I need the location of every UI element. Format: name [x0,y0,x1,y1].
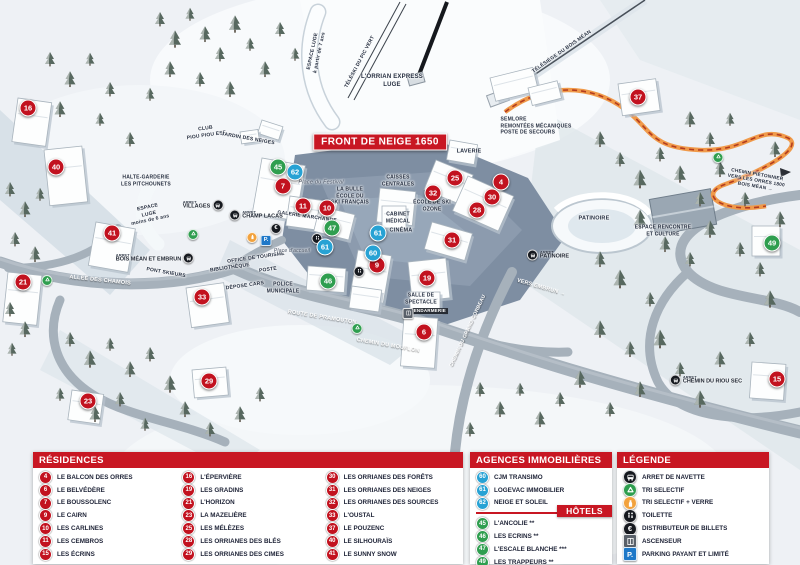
map-marker-46[interactable]: 46 [320,273,337,290]
marker-badge: 7 [39,497,52,510]
recycle-icon [352,323,363,334]
bus-stop-bois-m-an-et-embrun: ARRETBOIS MÉAN ET EMBRUN [116,253,194,264]
legend-item-19: 19LES GRADINS [176,484,319,497]
map-marker-30[interactable]: 30 [484,189,501,206]
legende-item: TRI SELECTIF + VERRE [617,497,769,510]
legend-item-7: 7LE BOUSSOLENC [33,497,176,510]
legend-item-4: 4LE BALCON DES ORRES [33,471,176,484]
marker-badge: 25 [182,522,195,535]
map-marker-32[interactable]: 32 [425,185,442,202]
map-marker-16[interactable]: 16 [20,100,37,117]
legend-item-6: 6LE BELVÉDÈRE [33,484,176,497]
facility-recycle-icon [713,147,724,165]
map-marker-62[interactable]: 62 [287,164,304,181]
legend-item-15: 15LES ÉCRINS [33,548,176,561]
facility-elevator-icon [403,303,414,321]
map-marker-6[interactable]: 6 [416,324,433,341]
bus-stop-label: ARRETVILLAGES [183,200,211,210]
map-marker-4[interactable]: 4 [493,174,510,191]
legend-item-label: LOGEVAC IMMOBILIER [494,487,564,494]
legende-item-label: TRI SELECTIF + VERRE [642,499,713,506]
legend-item-31: 31LES ORRIANES DES NEIGES [320,484,463,497]
legend-item-46: 46LES ECRINS ** [470,530,612,543]
map-marker-61[interactable]: 61 [370,225,387,242]
legend-item-label: L'ANCOLIE ** [494,520,534,527]
bus-icon [670,375,681,386]
map-marker-37[interactable]: 37 [630,89,647,106]
legend-item-30: 30LES ORRIANES DES FORÊTS [320,471,463,484]
legende-item: ASCENSEUR [617,535,769,548]
bus-stop-label: ARRETPATINOIRE [540,250,569,260]
legend-item-label: L'OUSTAL [344,512,375,519]
recycle-icon [713,152,724,163]
legende-item: TOILETTE [617,509,769,522]
legende-item-label: TOILETTE [642,512,672,519]
legend-item-label: LES ORRIANES DES NEIGES [344,487,431,494]
legend-item-60: 60CJM TRANSIMO [470,471,612,484]
legend-item-label: LE SILHOURAÏS [344,538,393,545]
legend-item-33: 33L'OUSTAL [320,509,463,522]
agencies-list: 60CJM TRANSIMO61LOGEVAC IMMOBILIER62NEIG… [470,468,612,509]
atm-icon: € [271,223,282,234]
legend-item-label: LES CARLINES [57,525,103,532]
marker-badge: 4 [39,471,52,484]
legende-header: LÉGENDE [617,452,769,468]
front-de-neige-banner: FRONT DE NEIGE 1650 [313,134,447,151]
parking-icon: P. [261,235,272,246]
legend-item-label: LA MAZELIÈRE [200,512,246,519]
legend-item-label: LE CAIRN [57,512,87,519]
hotels-list: 45L'ANCOLIE **46LES ECRINS **47L'ESCALE … [470,517,612,565]
map-marker-33[interactable]: 33 [194,289,211,306]
bus-stop-chemin-du-riou-sec: ARRETCHEMIN DU RIOU SEC [670,375,742,386]
marker-badge: 19 [182,484,195,497]
map-marker-7[interactable]: 7 [275,178,292,195]
legend-item-label: LE BALCON DES ORRES [57,474,133,481]
legend-item-9: 9LE CAIRN [33,509,176,522]
marker-badge: 21 [182,497,195,510]
legend-item-37: 37LE POUZENC [320,522,463,535]
marker-badge: 46 [476,530,489,543]
residences-header: RÉSIDENCES [33,452,463,468]
bus-icon [229,210,240,221]
marker-badge: 16 [182,471,195,484]
facility-recycle-icon [352,318,363,336]
legende-item: P.PARKING PAYANT ET LIMITÉ [617,548,769,561]
recycle-icon [42,275,53,286]
glass-icon [247,232,258,243]
marker-badge: 49 [476,556,489,565]
toilet-icon [354,266,365,277]
legende-item: €DISTRIBUTEUR DE BILLETS [617,522,769,535]
legend-item-21: 21L'HORIZON [176,497,319,510]
legende-item-label: PARKING PAYANT ET LIMITÉ [642,551,729,558]
marker-badge: 61 [476,484,489,497]
legend-item-25: 25LES MÉLÈZES [176,522,319,535]
marker-badge: 15 [39,548,52,561]
marker-badge: 62 [476,497,489,510]
residences-column: 16L'ÉPERVIÈRE19LES GRADINS21L'HORIZON23L… [176,471,319,561]
marker-badge: 23 [182,509,195,522]
map-marker-61[interactable]: 61 [317,239,334,256]
map-marker-19[interactable]: 19 [419,270,436,287]
legende-item-label: DISTRIBUTEUR DE BILLETS [642,525,727,532]
residences-list: 4LE BALCON DES ORRES6LE BELVÉDÈRE7LE BOU… [33,468,463,561]
legend-item-label: LES ORRIANES DES BLÉS [200,538,280,545]
marker-badge: 37 [326,522,339,535]
legend-item-11: 11LES CEMBROS [33,535,176,548]
legend-item-40: 40LE SILHOURAÏS [320,535,463,548]
map-marker-60[interactable]: 60 [365,245,382,262]
legende-item-label: TRI SELECTIF [642,487,684,494]
facility-recycle-icon [42,270,53,288]
map-marker-10[interactable]: 10 [319,200,336,217]
legend-item-label: LE BOUSSOLENC [57,499,111,506]
legende-item: TRI SELECTIF [617,484,769,497]
marker-badge: 28 [182,535,195,548]
legend-item-label: LES MÉLÈZES [200,525,244,532]
marker-badge: 45 [476,517,489,530]
parking-icon: P. [623,547,637,561]
marker-badge: 33 [326,509,339,522]
facility-toilet-icon [354,261,365,279]
legend-item-41: 41LE SUNNY SNOW [320,548,463,561]
map-marker-29[interactable]: 29 [201,373,218,390]
legend-item-label: CJM TRANSIMO [494,474,543,481]
legend-item-label: LES TRAPPEURS ** [494,559,553,565]
bus-stop-villages: ARRETVILLAGES [183,200,224,211]
facility-recycle-icon [188,224,199,242]
bus-icon [212,200,223,211]
map-marker-15[interactable]: 15 [769,371,786,388]
map-marker-41[interactable]: 41 [104,225,121,242]
marker-badge: 11 [39,535,52,548]
legende-box: LÉGENDE ARRET DE NAVETTETRI SELECTIFTRI … [617,452,769,564]
hotels-divider: HÔTELS [476,512,608,514]
legende-item-label: ASCENSEUR [642,538,682,545]
bus-stop-champ-lacas: ARRETCHAMP LACAS [229,210,283,221]
legend-item-label: L'ÉPERVIÈRE [200,474,241,481]
map-marker-23[interactable]: 23 [80,393,97,410]
agencies-hotels-legend-box: AGENCES IMMOBILIÈRES 60CJM TRANSIMO61LOG… [470,452,612,564]
legend-item-label: LES ECRINS ** [494,533,538,540]
legend-item-label: LES ÉCRINS [57,551,95,558]
recycle-icon [188,229,199,240]
legend-item-45: 45L'ANCOLIE ** [470,517,612,530]
toilet-icon [623,509,637,523]
facility-glass-icon [247,227,258,245]
map-marker-21[interactable]: 21 [15,274,32,291]
map-marker-49[interactable]: 49 [764,235,781,252]
residences-column: 30LES ORRIANES DES FORÊTS31LES ORRIANES … [320,471,463,561]
marker-badge: 41 [326,548,339,561]
legend-item-10: 10LES CARLINES [33,522,176,535]
hotels-header: HÔTELS [557,505,612,517]
bus-stop-label: ARRETBOIS MÉAN ET EMBRUN [116,253,181,263]
residences-column: 4LE BALCON DES ORRES6LE BELVÉDÈRE7LE BOU… [33,471,176,561]
marker-badge: 29 [182,548,195,561]
legende-item-label: ARRET DE NAVETTE [642,474,705,481]
marker-badge: 60 [476,471,489,484]
legend-item-label: L'HORIZON [200,499,234,506]
legend-item-label: L'ESCALE BLANCHE *** [494,546,567,553]
marker-badge: 47 [476,543,489,556]
marker-badge: 6 [39,484,52,497]
marker-badge: 40 [326,535,339,548]
legend-item-32: 32LES ORRIANES DES SOURCES [320,497,463,510]
residences-legend-box: RÉSIDENCES 4LE BALCON DES ORRES6LE BELVÉ… [33,452,463,564]
legende-list: ARRET DE NAVETTETRI SELECTIFTRI SELECTIF… [617,468,769,561]
legend-item-16: 16L'ÉPERVIÈRE [176,471,319,484]
marker-badge: 32 [326,497,339,510]
legend-item-label: LES ORRIANES DES FORÊTS [344,474,433,481]
map-marker-11[interactable]: 11 [295,198,312,215]
glass-icon [623,496,637,510]
map-marker-45[interactable]: 45 [270,159,287,176]
bus-stop-label: ARRETCHEMIN DU RIOU SEC [683,375,742,385]
map-marker-31[interactable]: 31 [444,232,461,249]
bus-stop-label: ARRETCHAMP LACAS [242,210,283,220]
legend-item-label: NEIGE ET SOLEIL [494,499,548,506]
map-marker-25[interactable]: 25 [447,170,464,187]
bus-stop-patinoire: ARRETPATINOIRE [527,250,569,261]
elevator-icon [403,308,414,319]
marker-badge: 9 [39,509,52,522]
resort-map-page: ESPACE LUGE à partir de 7 ansTÉLÉSKI DU … [0,0,800,565]
agencies-header: AGENCES IMMOBILIÈRES [470,452,612,468]
legend-item-label: LES CEMBROS [57,538,103,545]
legend-item-28: 28LES ORRIANES DES BLÉS [176,535,319,548]
legend-item-label: LES GRADINS [200,487,243,494]
legend-item-61: 61LOGEVAC IMMOBILIER [470,484,612,497]
legend-item-label: LES ORRIANES DES CIMES [200,551,284,558]
map-marker-47[interactable]: 47 [324,220,341,237]
map-marker-40[interactable]: 40 [48,159,65,176]
map-marker-28[interactable]: 28 [469,202,486,219]
marker-badge: 30 [326,471,339,484]
bus-icon [183,253,194,264]
legend-item-29: 29LES ORRIANES DES CIMES [176,548,319,561]
legend-item-49: 49LES TRAPPEURS ** [470,556,612,565]
bus-icon [527,250,538,261]
legend-item-label: LE SUNNY SNOW [344,551,397,558]
legend-item-47: 47L'ESCALE BLANCHE *** [470,543,612,556]
marker-badge: 31 [326,484,339,497]
legend-item-label: LE POUZENC [344,525,385,532]
marker-badge: 10 [39,522,52,535]
legend-item-label: LE BELVÉDÈRE [57,487,105,494]
legend-item-23: 23LA MAZELIÈRE [176,509,319,522]
legend-item-label: LES ORRIANES DES SOURCES [344,499,439,506]
legende-item: ARRET DE NAVETTE [617,471,769,484]
